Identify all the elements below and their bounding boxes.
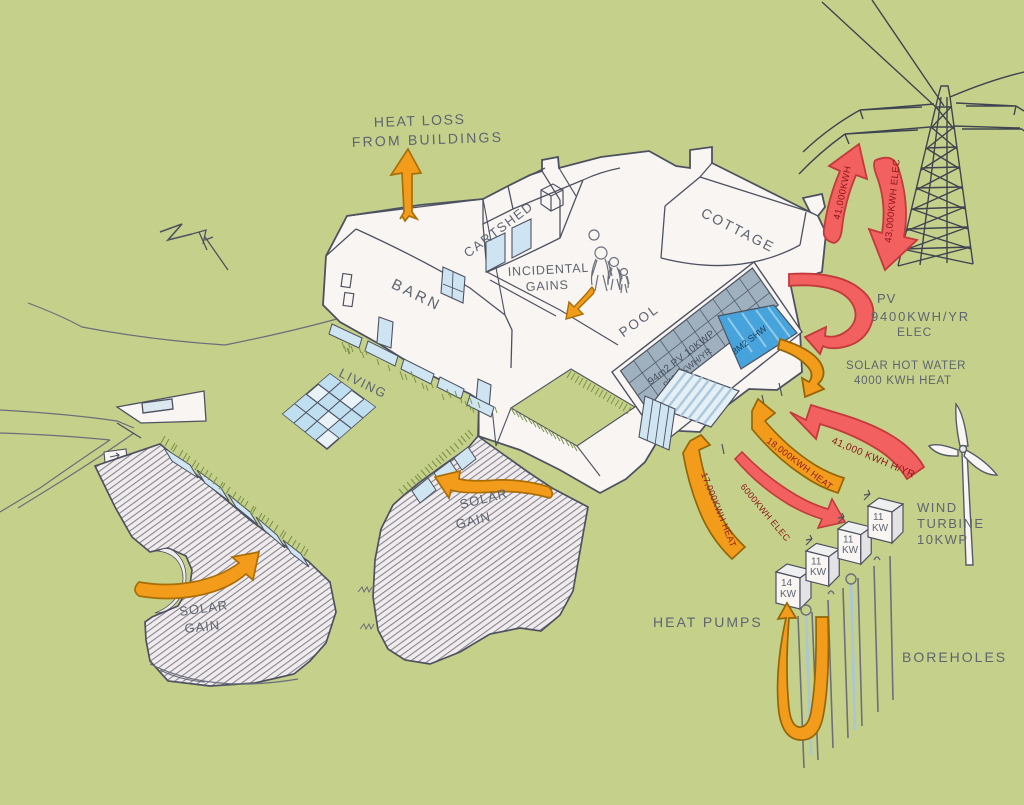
svg-text:4000 KWH HEAT: 4000 KWH HEAT bbox=[854, 375, 952, 387]
svg-text:14: 14 bbox=[781, 578, 793, 589]
svg-text:KW: KW bbox=[780, 589, 797, 600]
svg-text:HEAT LOSS: HEAT LOSS bbox=[374, 111, 466, 130]
svg-text:GAINS: GAINS bbox=[525, 278, 569, 294]
svg-text:WIND: WIND bbox=[917, 500, 958, 515]
svg-text:11: 11 bbox=[811, 556, 822, 567]
svg-text:KW: KW bbox=[810, 567, 827, 578]
svg-text:HEAT PUMPS: HEAT PUMPS bbox=[653, 614, 763, 630]
svg-text:ELEC: ELEC bbox=[897, 325, 932, 339]
svg-text:TURBINE: TURBINE bbox=[917, 516, 985, 531]
svg-text:SOLAR HOT WATER: SOLAR HOT WATER bbox=[846, 360, 966, 372]
svg-text:KW: KW bbox=[842, 545, 859, 556]
svg-text:BOREHOLES: BOREHOLES bbox=[902, 649, 1007, 665]
svg-text:10KWP: 10KWP bbox=[917, 532, 969, 547]
svg-text:11: 11 bbox=[843, 534, 854, 545]
svg-text:KW: KW bbox=[872, 523, 889, 534]
svg-text:9400KWH/YR: 9400KWH/YR bbox=[871, 309, 970, 324]
svg-text:11: 11 bbox=[873, 512, 884, 523]
svg-text:PV: PV bbox=[877, 291, 896, 306]
